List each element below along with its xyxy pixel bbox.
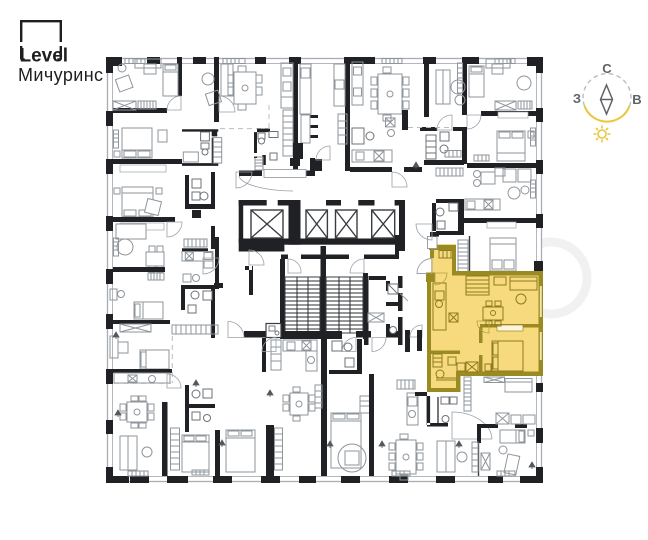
svg-text:Level: Level (20, 46, 69, 67)
svg-text:Мичуринс: Мичуринс (18, 65, 103, 85)
svg-text:С: С (602, 61, 612, 76)
svg-text:З: З (573, 91, 581, 106)
svg-text:В: В (632, 92, 641, 107)
